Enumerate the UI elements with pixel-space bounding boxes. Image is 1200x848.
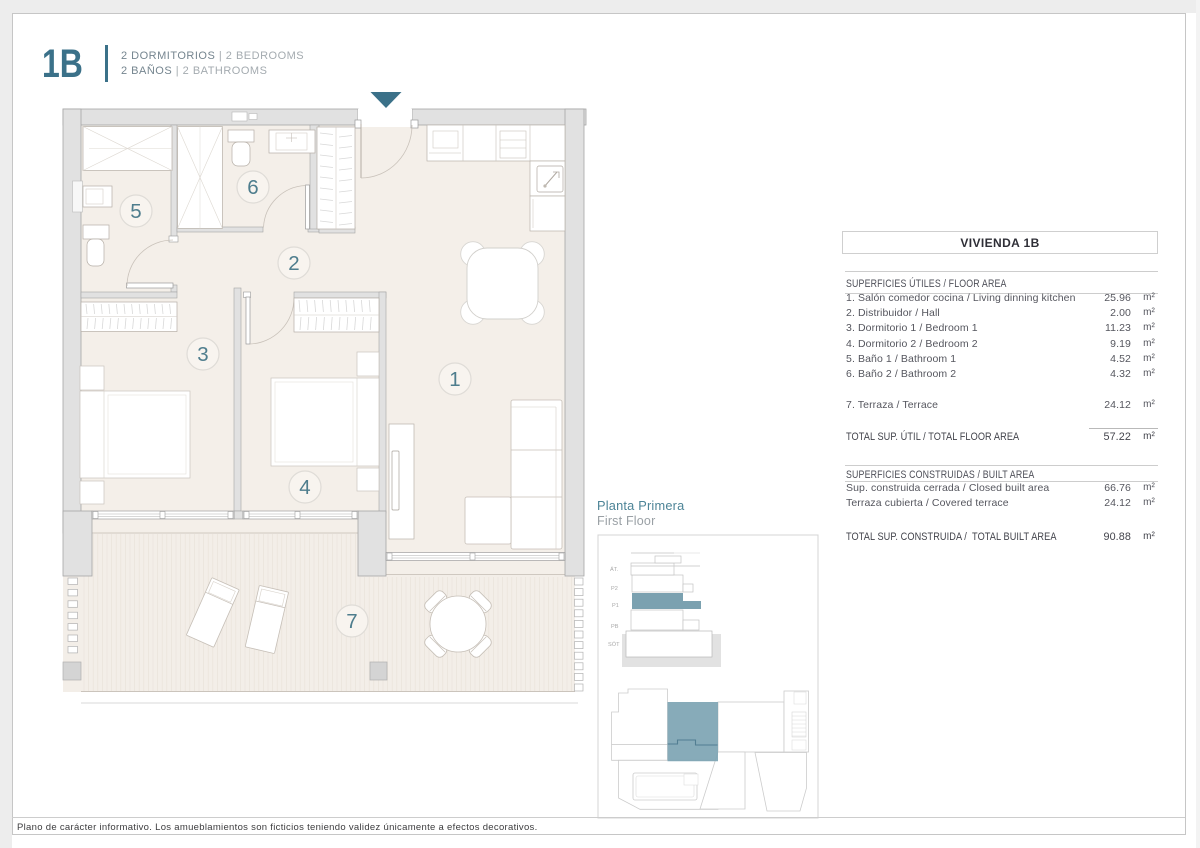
svg-text:7: 7 — [346, 610, 357, 633]
svg-text:2: 2 — [288, 252, 299, 275]
svg-text:1: 1 — [449, 368, 460, 391]
svg-text:P1: P1 — [612, 603, 619, 609]
svg-text:P2: P2 — [611, 586, 618, 592]
svg-text:PB: PB — [611, 624, 619, 630]
svg-text:ÁT.: ÁT. — [610, 566, 619, 573]
svg-text:3: 3 — [197, 343, 208, 366]
svg-text:4: 4 — [299, 476, 310, 499]
svg-text:SÓT: SÓT — [608, 641, 620, 648]
svg-text:6: 6 — [247, 176, 258, 199]
svg-text:5: 5 — [130, 200, 141, 223]
